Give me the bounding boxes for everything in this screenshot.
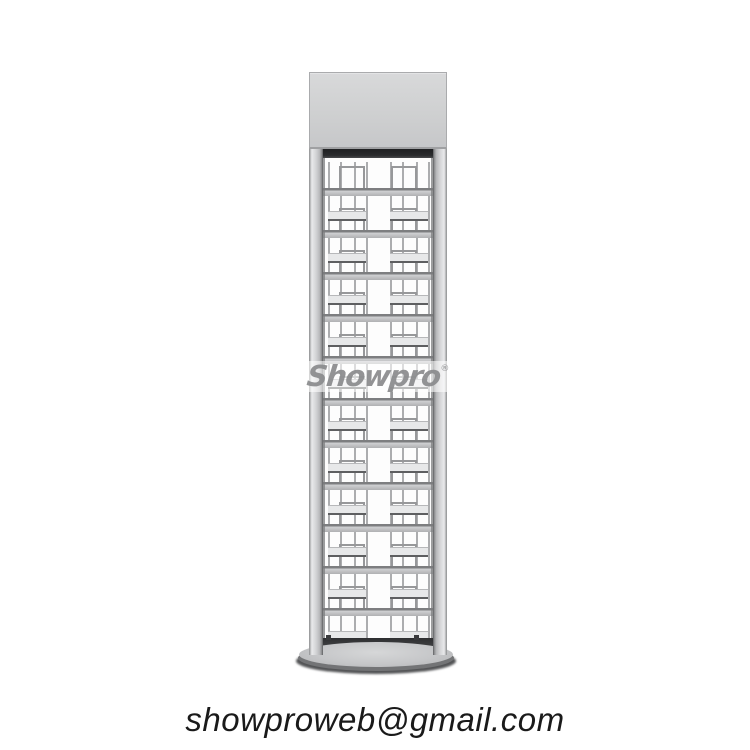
foot-dot [326, 635, 331, 640]
pocket-tray [328, 505, 366, 515]
contact-email: showproweb@gmail.com [0, 701, 750, 739]
registered-trademark-symbol: ® [440, 364, 449, 374]
left-post [309, 149, 323, 655]
sign-header-panel [309, 72, 447, 149]
pocket-tray [328, 253, 366, 263]
pocket-wire-bracket [391, 166, 417, 188]
product-image: Showpro ® showproweb@gmail.com [0, 0, 750, 750]
pocket-tray [390, 211, 428, 221]
pocket-tray [390, 253, 428, 263]
pocket-tray [390, 463, 428, 473]
shelf-bar [323, 482, 433, 490]
rack-interior [323, 158, 433, 646]
shelf-bar [323, 314, 433, 322]
shelf-bar [323, 440, 433, 448]
top-recess-shadow [323, 149, 433, 158]
shelf-bar [323, 608, 433, 616]
shelf-bar [323, 398, 433, 406]
pocket-tray [328, 421, 366, 431]
pocket-tray [328, 589, 366, 599]
pocket-tray [328, 211, 366, 221]
pocket-tray [328, 337, 366, 347]
pocket-tray [328, 295, 366, 305]
pocket-tray [390, 505, 428, 515]
shelf-bar [323, 230, 433, 238]
pocket-tray [390, 589, 428, 599]
foot-dot [414, 635, 419, 640]
pocket-tray [328, 547, 366, 557]
pocket-tray [390, 337, 428, 347]
right-post [433, 149, 447, 655]
pocket-tray [390, 547, 428, 557]
pocket-tray [328, 463, 366, 473]
pocket-tray [390, 295, 428, 305]
brand-watermark-text: Showpro [305, 362, 441, 391]
interior-left-shadow [323, 158, 325, 638]
pocket-wire-bracket [339, 166, 365, 188]
brand-watermark: Showpro ® [308, 361, 448, 392]
pocket-tray [390, 421, 428, 431]
shelf-bar [323, 524, 433, 532]
shelf-bar [323, 272, 433, 280]
shelf-bar [323, 188, 433, 196]
shelf-bar [323, 566, 433, 574]
